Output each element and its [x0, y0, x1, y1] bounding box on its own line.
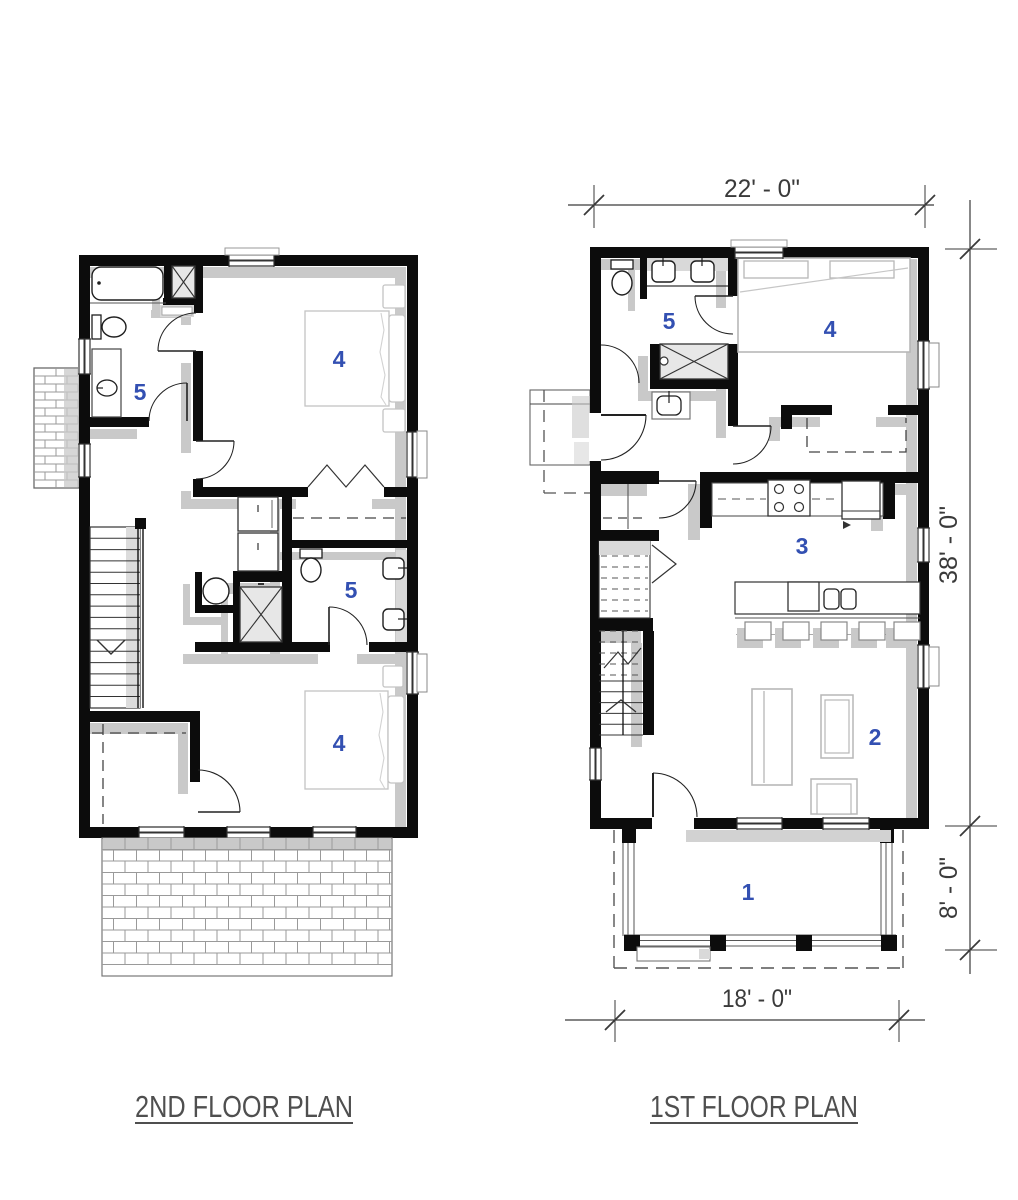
svg-text:3: 3 [796, 533, 809, 559]
svg-text:4: 4 [333, 730, 346, 756]
svg-text:8' - 0": 8' - 0" [935, 857, 963, 919]
svg-text:1: 1 [742, 879, 755, 905]
svg-text:4: 4 [824, 316, 837, 342]
svg-text:5: 5 [345, 577, 358, 603]
svg-text:4: 4 [333, 346, 346, 372]
svg-text:38' - 0": 38' - 0" [935, 506, 963, 584]
svg-text:5: 5 [663, 308, 676, 334]
svg-text:22' - 0": 22' - 0" [724, 175, 800, 203]
svg-text:18' - 0": 18' - 0" [722, 985, 792, 1013]
svg-text:2ND FLOOR PLAN: 2ND FLOOR PLAN [135, 1089, 353, 1124]
svg-text:2: 2 [869, 724, 882, 750]
svg-text:1ST FLOOR PLAN: 1ST FLOOR PLAN [650, 1089, 858, 1124]
svg-text:5: 5 [134, 379, 147, 405]
